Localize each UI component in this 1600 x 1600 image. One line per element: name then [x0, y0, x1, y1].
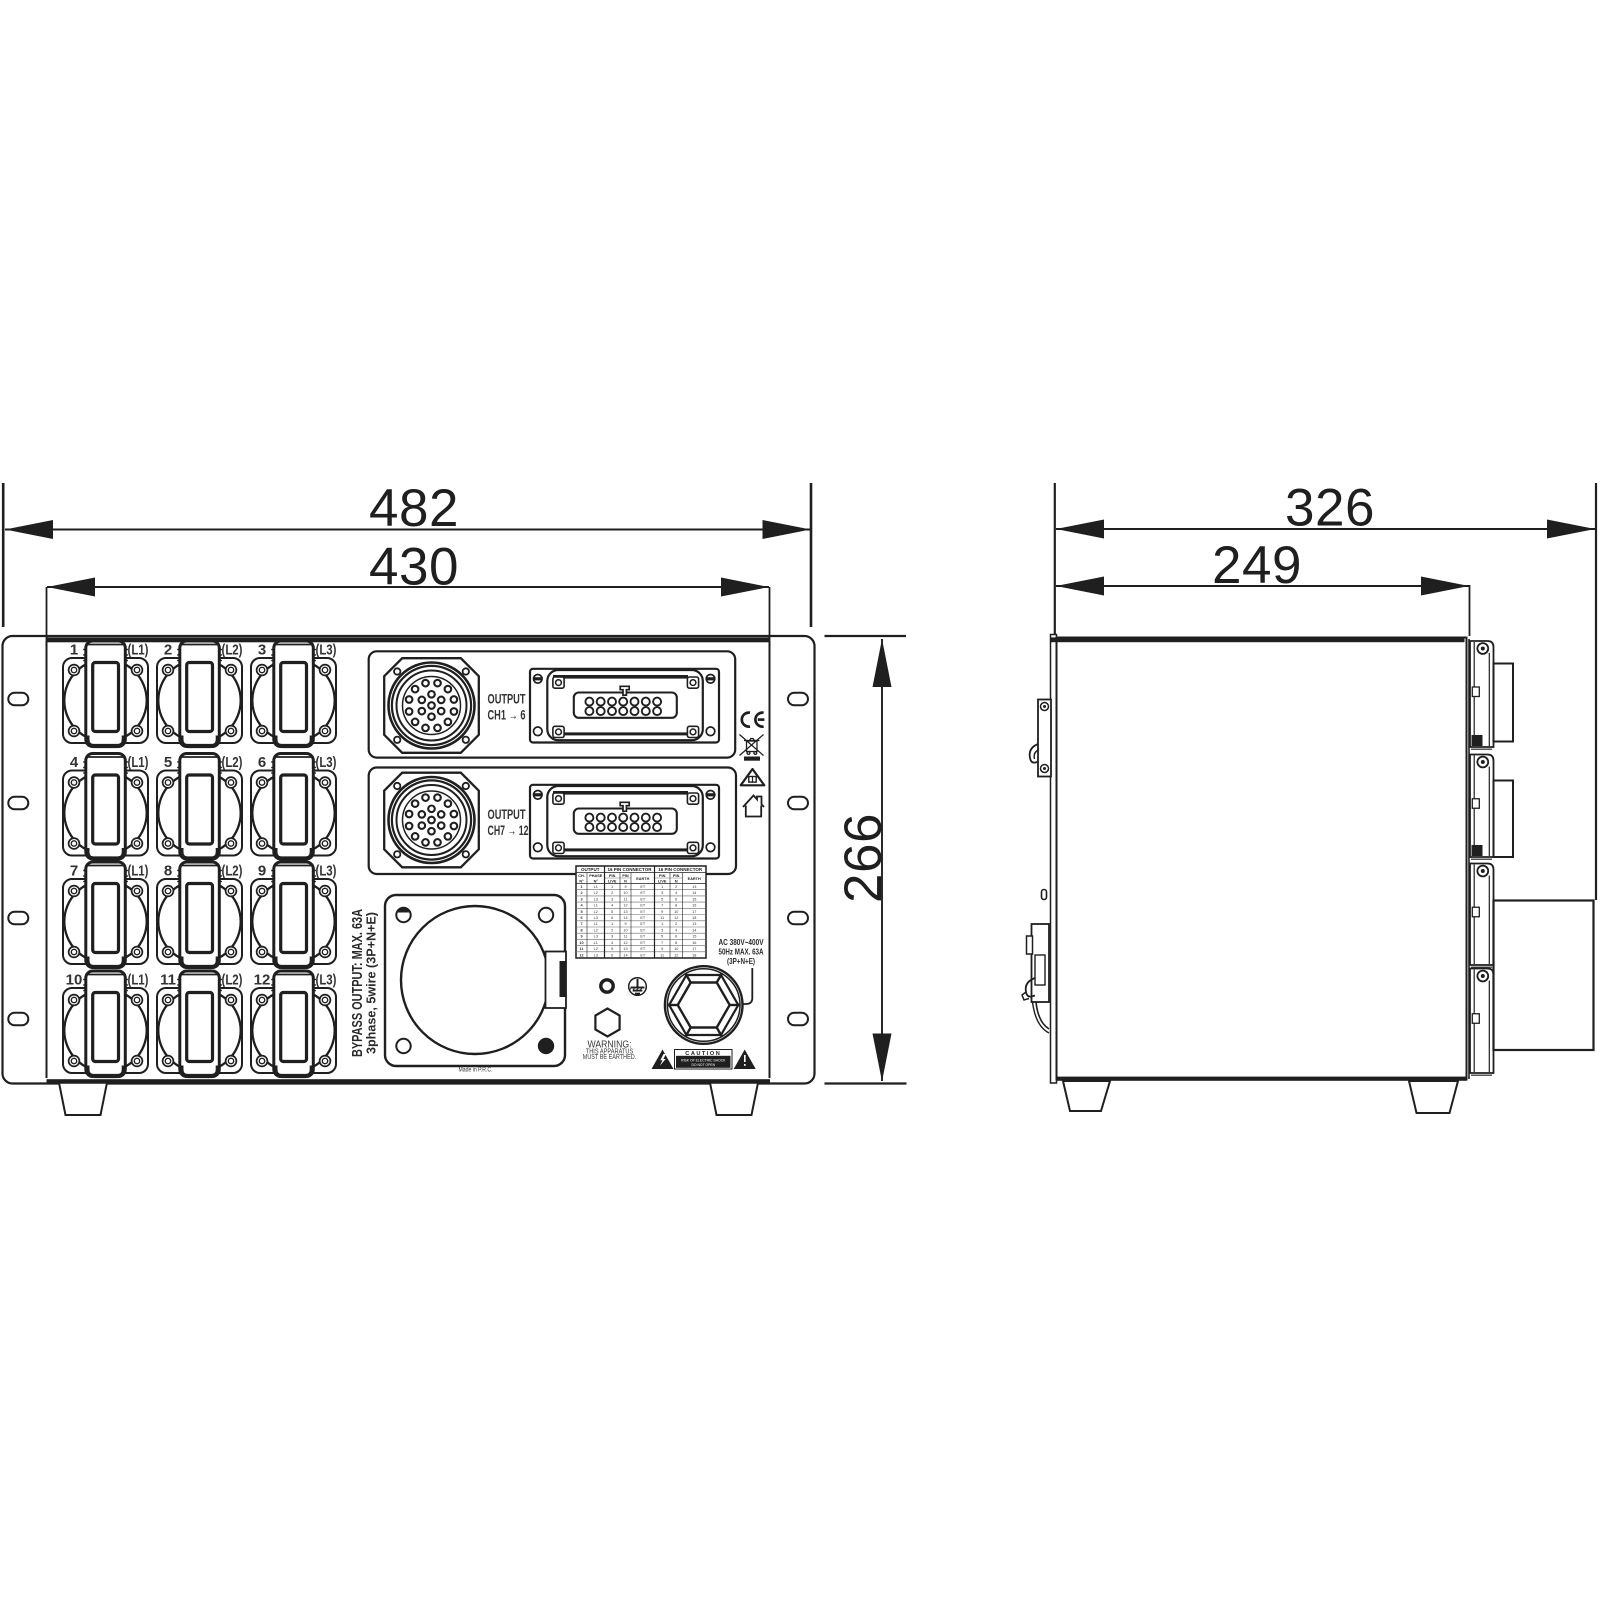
svg-text:Made in P.R.C.: Made in P.R.C. [459, 1067, 493, 1074]
svg-text:(L3): (L3) [316, 972, 337, 989]
svg-text:EARTH: EARTH [636, 877, 649, 881]
svg-text:13: 13 [692, 885, 696, 889]
svg-text:N: N [675, 880, 678, 884]
svg-text:13: 13 [623, 910, 627, 914]
svg-text:3: 3 [580, 897, 582, 901]
svg-text:14: 14 [692, 891, 696, 895]
svg-text:2: 2 [675, 922, 677, 926]
svg-text:L2: L2 [594, 891, 598, 895]
svg-text:7: 7 [580, 922, 582, 926]
svg-text:7: 7 [661, 941, 663, 945]
svg-text:(L3): (L3) [316, 754, 337, 771]
svg-text:9: 9 [661, 910, 663, 914]
svg-text:2: 2 [675, 885, 677, 889]
svg-text:OUTPUT: OUTPUT [488, 692, 527, 707]
svg-text:L1: L1 [594, 941, 598, 945]
svg-text:RISK OF ELECTRIC SHOCK: RISK OF ELECTRIC SHOCK [681, 1059, 726, 1063]
svg-text:10: 10 [674, 910, 678, 914]
svg-text:10: 10 [623, 928, 627, 932]
svg-text:CH7 → 12: CH7 → 12 [488, 823, 529, 838]
svg-text:14: 14 [692, 928, 696, 932]
svg-text:PIN: PIN [659, 874, 666, 878]
svg-text:EARTH: EARTH [688, 877, 701, 881]
svg-text:18: 18 [692, 953, 696, 957]
svg-text:2: 2 [611, 928, 613, 932]
svg-text:10: 10 [66, 972, 83, 989]
svg-text:PHASE: PHASE [589, 874, 603, 878]
svg-text:L1: L1 [594, 922, 598, 926]
svg-text:ET: ET [640, 891, 646, 895]
svg-text:4: 4 [675, 891, 677, 895]
svg-text:PIN: PIN [673, 874, 680, 878]
svg-text:8: 8 [580, 928, 582, 932]
svg-text:N°: N° [579, 880, 584, 884]
svg-text:LIVE: LIVE [608, 880, 617, 884]
svg-text:OUTPUT: OUTPUT [581, 867, 600, 872]
svg-text:8: 8 [675, 904, 677, 908]
svg-text:17: 17 [692, 910, 696, 914]
svg-text:ET: ET [640, 897, 646, 901]
svg-text:MUST BE EARTHED.: MUST BE EARTHED. [583, 1054, 637, 1061]
svg-text:L2: L2 [594, 928, 598, 932]
svg-text:ET: ET [640, 885, 646, 889]
svg-text:3: 3 [611, 897, 613, 901]
svg-text:4: 4 [611, 941, 613, 945]
svg-text:OUTPUT: OUTPUT [488, 807, 527, 822]
svg-text:ET: ET [640, 910, 646, 914]
svg-text:CAUTION: CAUTION [685, 1051, 721, 1057]
svg-text:8: 8 [675, 941, 677, 945]
svg-text:L1: L1 [594, 885, 598, 889]
svg-text:9: 9 [624, 885, 626, 889]
svg-text:11: 11 [624, 935, 628, 939]
svg-text:2: 2 [611, 891, 613, 895]
svg-text:ET: ET [640, 953, 646, 957]
svg-text:(L2): (L2) [222, 754, 243, 771]
svg-text:ET: ET [640, 947, 646, 951]
svg-text:4: 4 [70, 754, 79, 771]
svg-text:2: 2 [164, 642, 172, 659]
svg-text:13: 13 [692, 922, 696, 926]
svg-text:482: 482 [369, 479, 459, 538]
svg-text:ET: ET [640, 941, 646, 945]
svg-text:4: 4 [675, 928, 677, 932]
svg-text:L3: L3 [594, 916, 598, 920]
svg-text:(L3): (L3) [316, 642, 337, 659]
svg-text:(L1): (L1) [128, 642, 149, 659]
svg-text:ET: ET [640, 928, 646, 932]
svg-text:ET: ET [640, 904, 646, 908]
svg-text:3: 3 [611, 935, 613, 939]
svg-text:L3: L3 [594, 935, 598, 939]
svg-text:5: 5 [164, 754, 172, 771]
svg-text:2: 2 [580, 891, 582, 895]
svg-text:17: 17 [692, 947, 696, 951]
svg-text:16: 16 [692, 941, 696, 945]
svg-text:5: 5 [661, 935, 663, 939]
svg-text:11: 11 [660, 953, 664, 957]
svg-text:8: 8 [164, 863, 172, 880]
svg-text:12: 12 [623, 904, 627, 908]
svg-text:14: 14 [623, 916, 627, 920]
svg-text:9: 9 [580, 935, 582, 939]
svg-text:7: 7 [661, 904, 663, 908]
svg-text:1: 1 [611, 922, 613, 926]
svg-text:1: 1 [661, 922, 663, 926]
svg-text:6: 6 [580, 916, 582, 920]
svg-text:L1: L1 [594, 904, 598, 908]
svg-text:L3: L3 [594, 953, 598, 957]
svg-text:3phase, 5wire (3P+N+E): 3phase, 5wire (3P+N+E) [364, 912, 379, 1054]
svg-text:11: 11 [624, 897, 628, 901]
svg-text:6: 6 [675, 897, 677, 901]
svg-text:18: 18 [692, 916, 696, 920]
svg-text:3: 3 [661, 891, 663, 895]
svg-text:(L2): (L2) [222, 972, 243, 989]
svg-text:LIVE: LIVE [658, 880, 667, 884]
svg-text:14: 14 [623, 953, 627, 957]
svg-text:AC 380V~400V: AC 380V~400V [719, 938, 764, 947]
svg-text:12: 12 [674, 916, 678, 920]
svg-text:9: 9 [661, 947, 663, 951]
svg-text:N°: N° [594, 880, 599, 884]
svg-text:430: 430 [369, 538, 459, 597]
svg-text:ET: ET [640, 916, 646, 920]
svg-text:5: 5 [611, 947, 613, 951]
svg-text:DO NOT OPEN: DO NOT OPEN [691, 1063, 715, 1067]
svg-text:(L2): (L2) [222, 642, 243, 659]
svg-text:5: 5 [580, 910, 582, 914]
svg-text:11: 11 [660, 916, 664, 920]
svg-text:16 PIN CONNECTOR: 16 PIN CONNECTOR [608, 867, 653, 872]
svg-text:ET: ET [640, 935, 646, 939]
svg-text:16 PIN CONNECTOR: 16 PIN CONNECTOR [658, 867, 703, 872]
svg-text:1: 1 [70, 642, 78, 659]
svg-text:10: 10 [674, 947, 678, 951]
svg-text:12: 12 [674, 953, 678, 957]
svg-text:(3P+N+E): (3P+N+E) [727, 957, 755, 966]
svg-text:9: 9 [624, 922, 626, 926]
svg-text:326: 326 [1285, 479, 1375, 538]
svg-text:1: 1 [611, 885, 613, 889]
svg-text:10: 10 [623, 891, 627, 895]
svg-text:15: 15 [692, 897, 696, 901]
svg-text:L2: L2 [594, 947, 598, 951]
svg-text:13: 13 [623, 947, 627, 951]
svg-text:PIN: PIN [609, 874, 616, 878]
svg-text:6: 6 [611, 916, 613, 920]
svg-text:(L3): (L3) [316, 863, 337, 880]
svg-text:7: 7 [70, 863, 78, 880]
svg-text:(L1): (L1) [128, 863, 149, 880]
svg-text:N: N [624, 880, 627, 884]
svg-text:10: 10 [579, 941, 583, 945]
svg-text:CH1 → 6: CH1 → 6 [488, 708, 526, 723]
svg-text:PIN: PIN [622, 874, 629, 878]
svg-text:50Hz MAX. 63A: 50Hz MAX. 63A [719, 948, 764, 957]
svg-text:6: 6 [611, 953, 613, 957]
svg-text:ET: ET [640, 922, 646, 926]
svg-text:3: 3 [661, 928, 663, 932]
svg-text:L2: L2 [594, 910, 598, 914]
svg-text:(L2): (L2) [222, 863, 243, 880]
svg-text:12: 12 [579, 953, 583, 957]
svg-text:5: 5 [611, 910, 613, 914]
svg-text:266: 266 [834, 813, 893, 903]
svg-text:CH.: CH. [578, 874, 585, 878]
svg-text:11: 11 [160, 972, 176, 989]
svg-text:249: 249 [1212, 536, 1302, 595]
svg-text:6: 6 [675, 935, 677, 939]
svg-text:1: 1 [580, 885, 582, 889]
svg-text:3: 3 [258, 642, 266, 659]
svg-text:4: 4 [611, 904, 613, 908]
svg-text:12: 12 [623, 941, 627, 945]
svg-text:L3: L3 [594, 897, 598, 901]
svg-text:9: 9 [258, 863, 266, 880]
svg-text:(L1): (L1) [128, 972, 149, 989]
svg-text:15: 15 [692, 935, 696, 939]
svg-text:5: 5 [661, 897, 663, 901]
svg-text:6: 6 [258, 754, 266, 771]
svg-text:12: 12 [254, 972, 271, 989]
svg-text:1: 1 [661, 885, 663, 889]
svg-text:16: 16 [692, 904, 696, 908]
svg-text:11: 11 [579, 947, 583, 951]
svg-text:(L1): (L1) [128, 754, 149, 771]
